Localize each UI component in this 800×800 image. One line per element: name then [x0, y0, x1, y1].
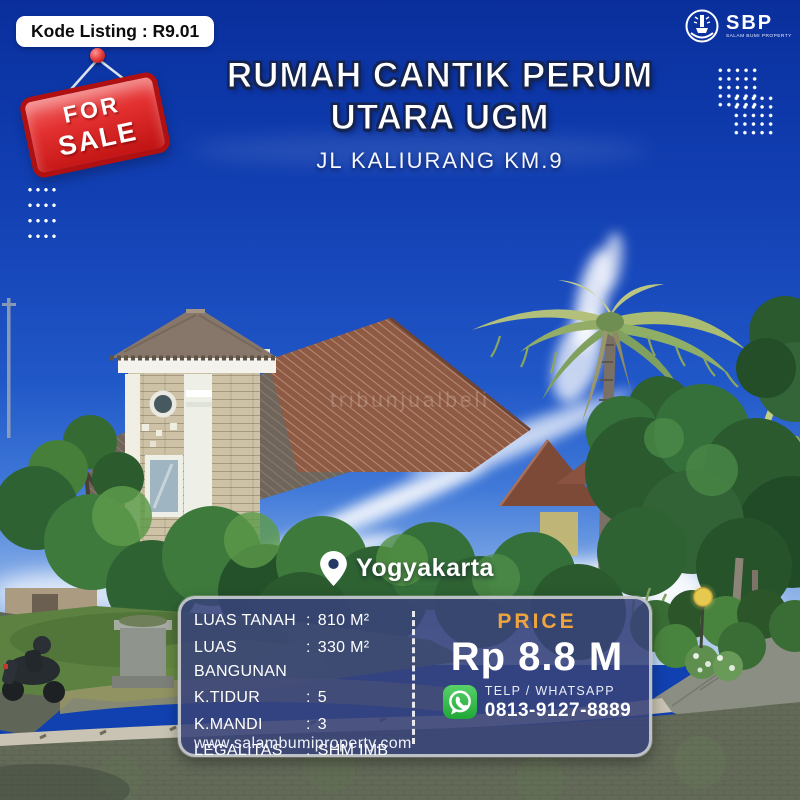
title-line-1: RUMAH CANTIK PERUM	[100, 55, 780, 97]
title-line-2: UTARA UGM	[100, 97, 780, 139]
photo-watermark: tribunjualbeli	[330, 389, 490, 412]
listing-code-badge: Kode Listing : R9.01	[16, 16, 214, 47]
contact-phone: 0813-9127-8889	[485, 701, 631, 720]
listing-title: RUMAH CANTIK PERUM UTARA UGM JL KALIURAN…	[100, 55, 780, 174]
stone-pedestal	[112, 615, 174, 688]
spec-row-kamar-mandi: K.MANDI : 3	[194, 713, 388, 737]
spec-row-kamar-tidur: K.TIDUR : 5	[194, 686, 388, 710]
price-label: PRICE	[429, 610, 645, 634]
lighthouse-icon	[684, 7, 720, 45]
location-label: Yogyakarta	[320, 551, 494, 586]
price-value: Rp 8.8 M	[429, 636, 645, 678]
brand-logo: SBP SALAM BUMI PROPERTY	[684, 7, 792, 45]
info-panel: LUAS TANAH : 810 M² LUAS BANGUNAN : 330 …	[178, 596, 652, 757]
panel-divider	[412, 611, 415, 744]
contact-text: TELP / WHATSAPP 0813-9127-8889	[485, 685, 631, 720]
brand-caption: SALAM BUMI PROPERTY	[726, 35, 792, 40]
spec-row-luas-tanah: LUAS TANAH : 810 M²	[194, 609, 388, 633]
brand-abbr: SBP	[726, 13, 792, 33]
location-name: Yogyakarta	[356, 554, 494, 583]
website-url: www.salambumiproperty.com	[194, 735, 412, 753]
dot-grid-left	[26, 182, 59, 246]
price-section: PRICE Rp 8.8 M TELP / WHATSAPP 08	[429, 610, 645, 720]
contact-label: TELP / WHATSAPP	[485, 685, 615, 698]
contact-row: TELP / WHATSAPP 0813-9127-8889	[429, 685, 645, 720]
for-sale-sign: FOR SALE	[18, 46, 188, 178]
map-pin-icon	[320, 551, 347, 586]
whatsapp-icon	[443, 685, 477, 719]
spec-row-luas-bangunan: LUAS BANGUNAN : 330 M²	[194, 636, 388, 684]
flyer-canvas: tribunjualbeli	[0, 0, 800, 800]
pushpin-icon	[90, 48, 105, 63]
address-subtitle: JL KALIURANG KM.9	[100, 148, 780, 174]
